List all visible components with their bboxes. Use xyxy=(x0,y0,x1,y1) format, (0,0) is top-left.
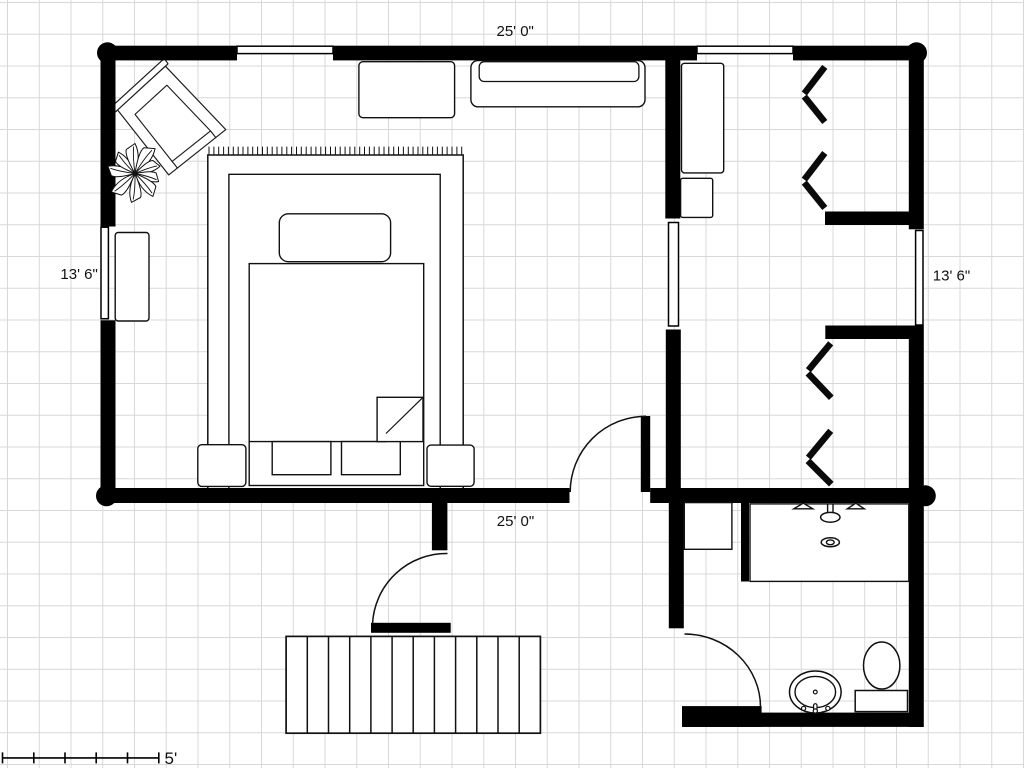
svg-text:5': 5' xyxy=(165,749,178,768)
svg-text:13' 6": 13' 6" xyxy=(60,266,97,283)
svg-text:25' 0": 25' 0" xyxy=(497,23,534,40)
svg-text:13' 6": 13' 6" xyxy=(933,268,970,285)
svg-text:25' 0": 25' 0" xyxy=(497,513,534,530)
